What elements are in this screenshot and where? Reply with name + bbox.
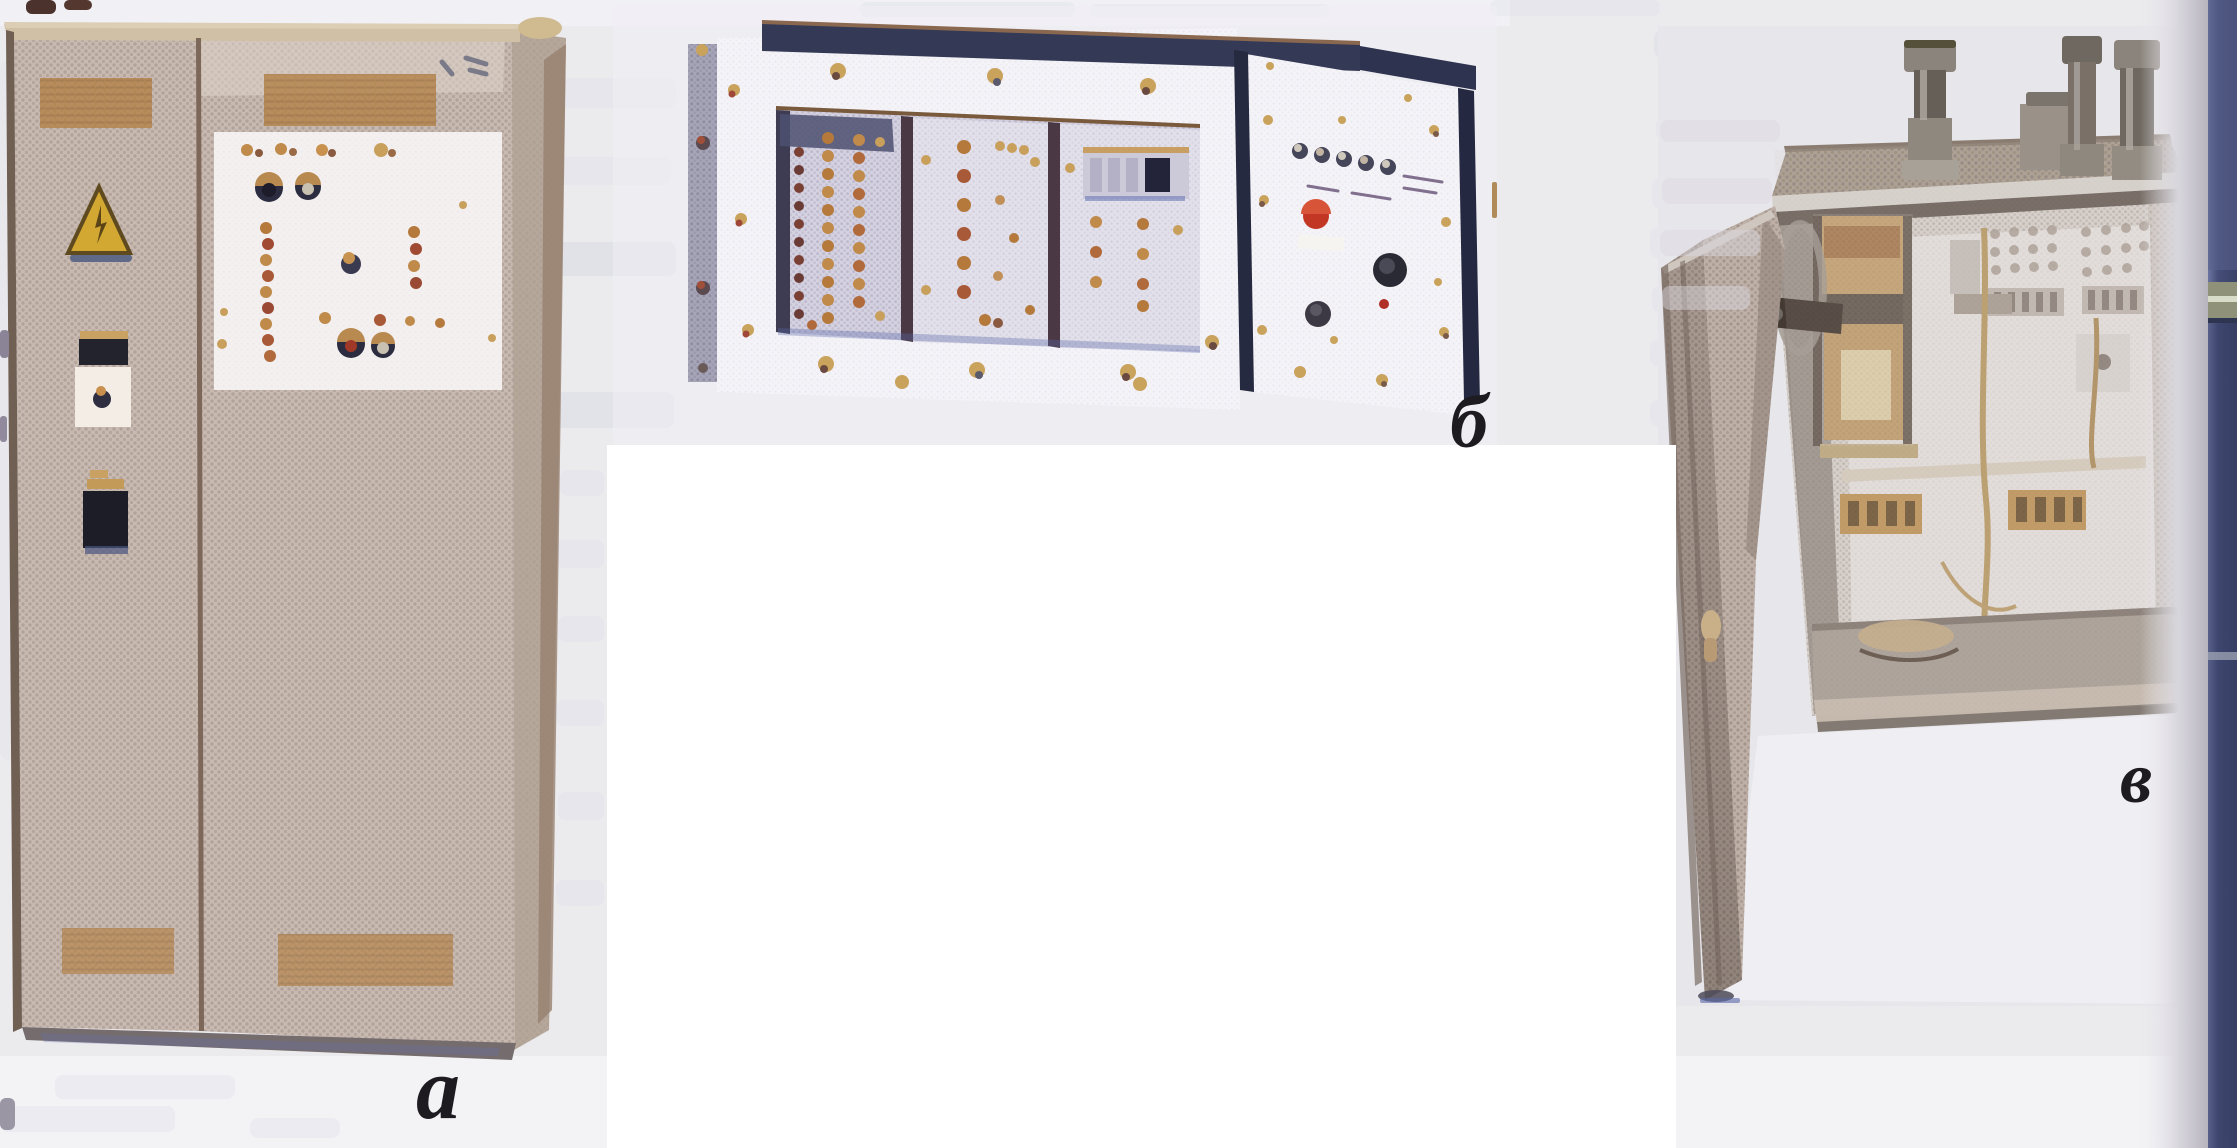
svg-text:в: в	[2120, 738, 2152, 818]
svg-text:а: а	[416, 1041, 460, 1138]
svg-text:б: б	[1450, 380, 1491, 464]
